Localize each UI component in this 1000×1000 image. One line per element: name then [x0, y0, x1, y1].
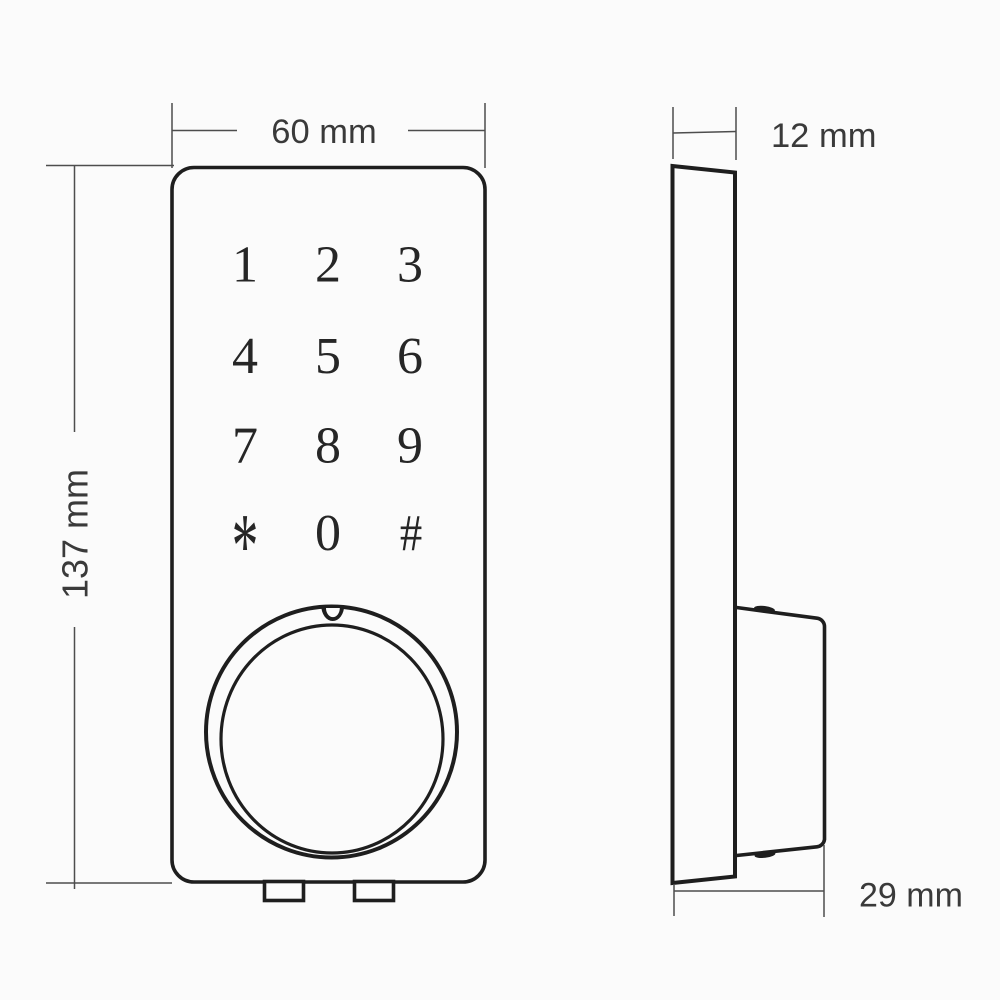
svg-text:1: 1: [232, 237, 258, 294]
svg-text:5: 5: [315, 328, 341, 385]
svg-text:*: *: [232, 496, 259, 597]
svg-text:29 mm: 29 mm: [859, 877, 963, 915]
svg-text:12 mm: 12 mm: [771, 117, 876, 155]
svg-text:2: 2: [315, 237, 341, 294]
svg-text:0: 0: [315, 505, 341, 562]
svg-text:7: 7: [232, 418, 258, 475]
svg-text:9: 9: [397, 418, 423, 475]
svg-text:60 mm: 60 mm: [271, 113, 376, 151]
svg-text:3: 3: [397, 237, 423, 294]
svg-text:8: 8: [315, 418, 341, 475]
svg-text:4: 4: [232, 328, 258, 385]
svg-text:137 mm: 137 mm: [55, 469, 96, 599]
svg-text:#: #: [400, 505, 422, 562]
svg-text:6: 6: [397, 328, 423, 385]
